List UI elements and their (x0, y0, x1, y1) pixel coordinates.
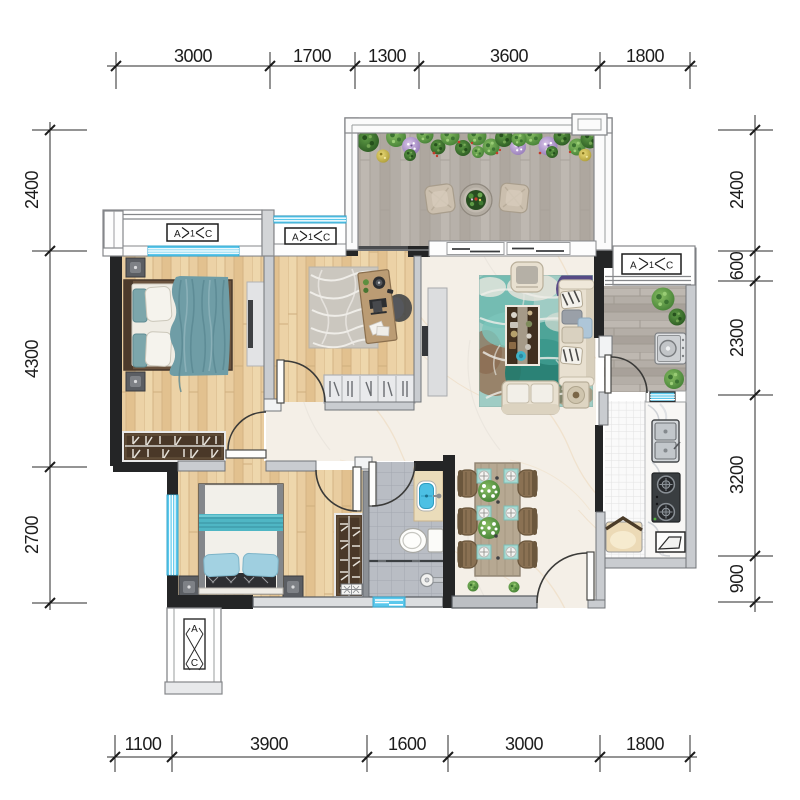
svg-text:3000: 3000 (505, 734, 544, 754)
svg-text:3600: 3600 (490, 46, 529, 66)
svg-text:3200: 3200 (727, 455, 747, 494)
svg-text:1: 1 (308, 232, 313, 242)
svg-text:C: C (205, 229, 212, 240)
svg-text:1700: 1700 (293, 46, 332, 66)
svg-text:2400: 2400 (22, 170, 42, 209)
svg-text:A: A (174, 229, 181, 240)
svg-text:1600: 1600 (388, 734, 427, 754)
svg-text:A: A (191, 624, 198, 635)
svg-text:C: C (191, 658, 198, 669)
svg-text:1100: 1100 (125, 734, 162, 754)
svg-text:600: 600 (727, 251, 747, 280)
svg-text:C: C (666, 261, 673, 272)
svg-text:4300: 4300 (22, 339, 42, 378)
svg-text:2700: 2700 (22, 515, 42, 554)
svg-text:1800: 1800 (626, 46, 665, 66)
svg-text:C: C (323, 233, 330, 244)
svg-text:3900: 3900 (250, 734, 289, 754)
svg-text:2400: 2400 (727, 170, 747, 209)
svg-text:1: 1 (190, 229, 195, 239)
svg-text:900: 900 (727, 564, 747, 593)
svg-text:3000: 3000 (174, 46, 213, 66)
svg-text:1300: 1300 (368, 46, 407, 66)
svg-text:1800: 1800 (626, 734, 665, 754)
svg-text:1: 1 (649, 260, 654, 270)
svg-text:A: A (292, 233, 299, 244)
svg-text:A: A (630, 261, 637, 272)
svg-text:2300: 2300 (727, 318, 747, 357)
